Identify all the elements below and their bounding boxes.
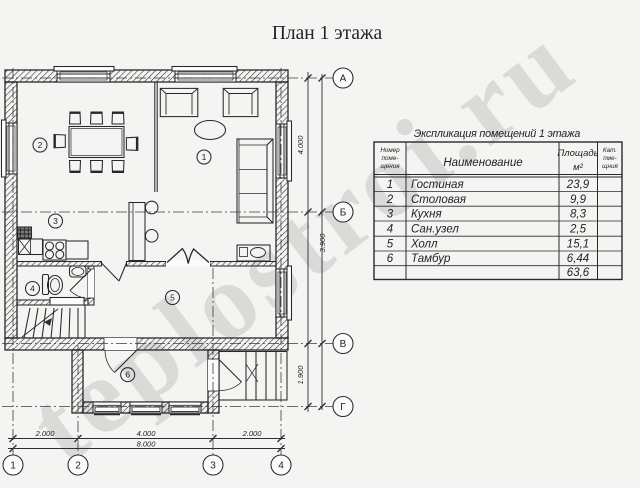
svg-text:2.000: 2.000	[35, 429, 56, 438]
svg-text:1.900: 1.900	[296, 365, 305, 385]
svg-text:План 1 этажа: План 1 этажа	[272, 23, 383, 44]
svg-text:63,6: 63,6	[567, 267, 590, 279]
svg-text:2: 2	[75, 461, 81, 472]
svg-text:8,3: 8,3	[570, 209, 587, 221]
svg-text:8.000: 8.000	[137, 440, 157, 449]
svg-text:23,9: 23,9	[566, 179, 590, 191]
svg-text:5: 5	[170, 293, 175, 303]
svg-text:Гостиная: Гостиная	[411, 179, 464, 191]
svg-text:Б: Б	[340, 208, 347, 219]
svg-text:3: 3	[53, 216, 58, 226]
svg-text:В: В	[340, 339, 347, 350]
svg-text:1: 1	[10, 461, 16, 472]
svg-text:2: 2	[386, 194, 394, 206]
svg-text:Г: Г	[340, 402, 346, 413]
svg-text:2,5: 2,5	[569, 224, 587, 236]
svg-text:Тамбур: Тамбур	[411, 253, 451, 265]
svg-text:4.000: 4.000	[137, 429, 157, 438]
svg-text:Площадь: Площадь	[557, 148, 598, 159]
svg-text:щения: щения	[380, 163, 400, 170]
svg-text:Экспликация помещений 1 этажа: Экспликация помещений 1 этажа	[414, 128, 580, 140]
svg-text:3: 3	[210, 461, 216, 472]
svg-text:Номер: Номер	[380, 147, 400, 154]
svg-text:1: 1	[202, 152, 207, 162]
svg-text:6,44: 6,44	[567, 253, 589, 265]
svg-text:Столовая: Столовая	[411, 194, 466, 206]
svg-text:щния: щния	[602, 163, 618, 170]
svg-text:3: 3	[387, 209, 394, 221]
svg-text:3.900: 3.900	[318, 233, 327, 253]
svg-text:Холл: Холл	[410, 239, 438, 251]
svg-text:пме-: пме-	[603, 155, 616, 162]
svg-text:Кухня: Кухня	[411, 209, 442, 221]
svg-text:2.000: 2.000	[242, 429, 263, 438]
svg-text:4.000: 4.000	[296, 135, 305, 155]
svg-text:5: 5	[387, 239, 394, 251]
svg-text:6: 6	[125, 370, 130, 380]
svg-text:4: 4	[387, 224, 393, 236]
svg-text:4: 4	[30, 284, 35, 294]
svg-text:2: 2	[38, 140, 43, 150]
svg-text:поме-: поме-	[382, 155, 399, 162]
svg-text:15,1: 15,1	[567, 239, 589, 251]
svg-text:9,9: 9,9	[570, 194, 587, 206]
svg-text:Сан.узел: Сан.узел	[411, 224, 459, 236]
svg-text:Кат.: Кат.	[603, 147, 617, 154]
svg-text:Наименование: Наименование	[443, 157, 522, 169]
svg-text:1: 1	[387, 179, 393, 191]
svg-text:4: 4	[278, 461, 284, 472]
svg-text:м²: м²	[573, 162, 584, 173]
svg-text:6: 6	[387, 253, 394, 265]
svg-text:А: А	[340, 74, 347, 85]
